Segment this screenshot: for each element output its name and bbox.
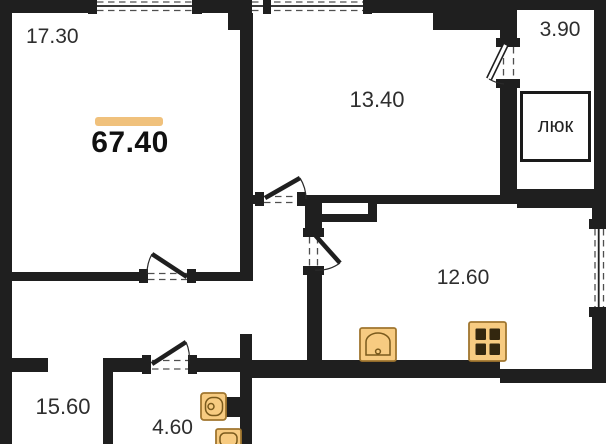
washbasin-icon xyxy=(216,429,241,444)
hatch-label: люк xyxy=(538,115,573,138)
room-area-label-hall: 15.60 xyxy=(28,394,98,420)
total-area-accent-bar xyxy=(95,117,163,126)
window-right xyxy=(589,219,606,317)
door-bathroom xyxy=(152,342,189,369)
toilet-icon xyxy=(201,393,240,420)
room-area-label-living: 17.30 xyxy=(26,25,79,49)
room-area-label-entry: 3.90 xyxy=(530,18,590,42)
floor-plan: 17.30 67.40 13.40 3.90 люк 12.60 15.60 4… xyxy=(0,0,606,444)
walls-layer xyxy=(0,0,606,444)
door-kitchen xyxy=(310,235,341,270)
door-entry xyxy=(489,45,514,84)
stove-icon xyxy=(469,322,506,361)
room-area-label-bedroom: 13.40 xyxy=(345,87,409,113)
hatch-box: люк xyxy=(520,91,591,162)
total-area-value: 67.40 xyxy=(84,126,176,160)
sink-icon xyxy=(360,328,396,361)
room-area-label-bath: 4.60 xyxy=(145,416,200,440)
room-area-label-kitchen: 12.60 xyxy=(430,266,496,290)
door-living xyxy=(147,254,187,280)
window-top-left xyxy=(88,0,202,14)
window-top-right xyxy=(252,0,372,14)
floor-plan-svg xyxy=(0,0,606,444)
